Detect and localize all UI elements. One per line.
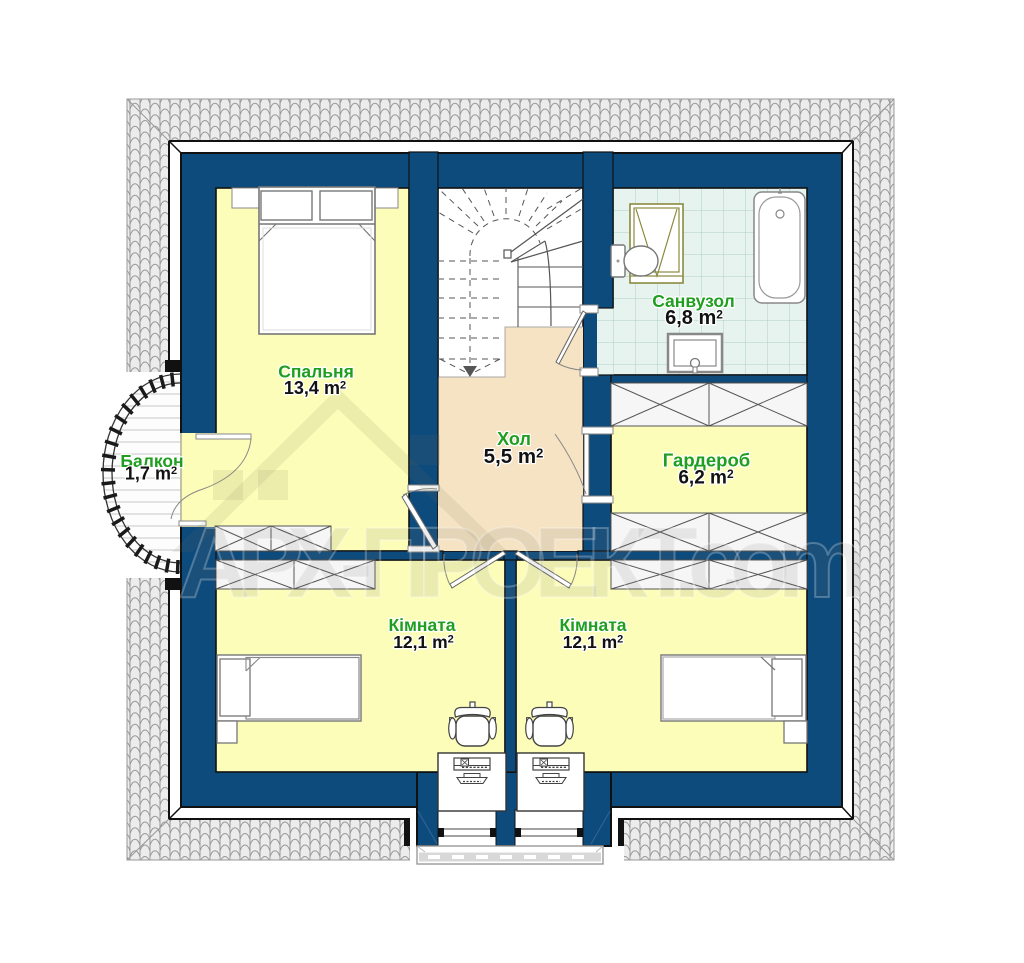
svg-text:6,2 m2: 6,2 m2	[678, 467, 734, 489]
svg-text:5,5 m2: 5,5 m2	[484, 445, 544, 468]
svg-text:12,1 m2: 12,1 m2	[393, 632, 454, 652]
svg-text:1,7 m2: 1,7 m2	[125, 464, 177, 484]
svg-text:12,1 m2: 12,1 m2	[563, 632, 624, 652]
svg-text:6,8 m2: 6,8 m2	[665, 307, 723, 329]
svg-text:АРХ-ПРОЕКТ.com: АРХ-ПРОЕКТ.com	[178, 507, 866, 619]
svg-text:13,4 m2: 13,4 m2	[284, 378, 346, 398]
